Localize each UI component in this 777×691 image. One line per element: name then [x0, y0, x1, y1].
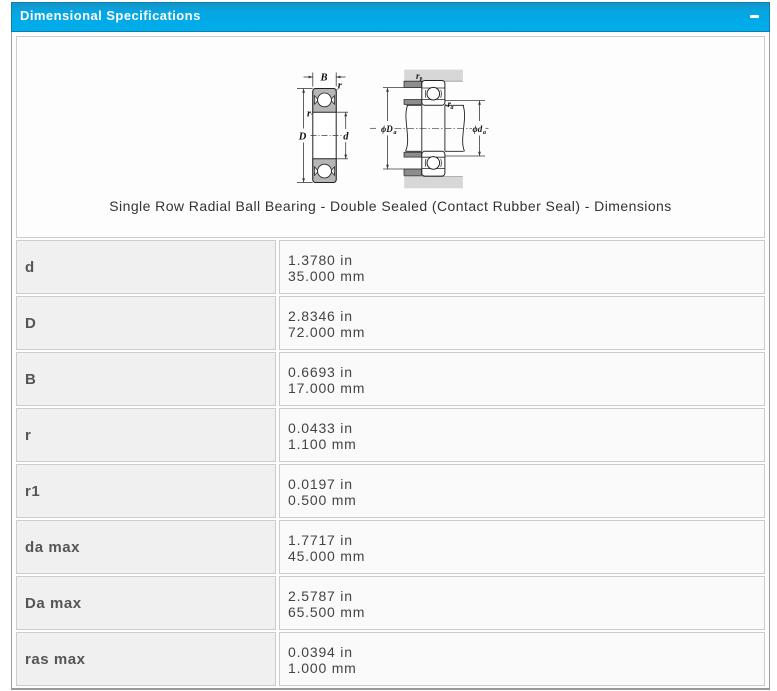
svg-text:r: r [307, 108, 312, 119]
svg-text:ϕD: ϕD [381, 124, 393, 134]
svg-text:D: D [298, 131, 307, 142]
svg-text:a: a [483, 130, 486, 136]
svg-text:a: a [451, 105, 454, 111]
svg-text:a: a [394, 130, 397, 136]
svg-text:r: r [338, 80, 343, 91]
svg-text:ϕd: ϕd [473, 124, 483, 134]
svg-text:d: d [343, 131, 349, 142]
svg-text:1: 1 [419, 77, 422, 83]
svg-text:B: B [320, 72, 328, 83]
